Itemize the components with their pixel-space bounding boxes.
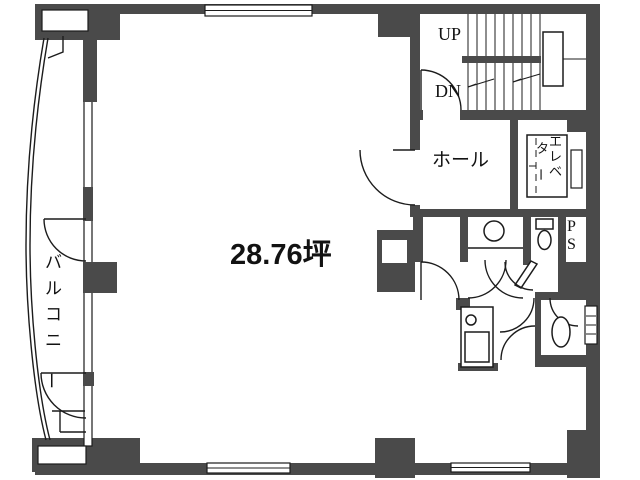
washbasin-sink bbox=[484, 221, 504, 241]
floor-plan: UP DN ホール エレベ ター PS bbox=[0, 0, 640, 480]
area-label: 28.76坪 bbox=[230, 238, 332, 271]
washroom-door-arc2 bbox=[485, 260, 523, 298]
kitchen-faucet bbox=[466, 315, 476, 325]
balcony-label: バルコニー bbox=[40, 253, 62, 389]
hall-main-door bbox=[360, 150, 415, 205]
pipe-space-label: PS bbox=[567, 218, 576, 253]
elevator-label-col1: エレベ bbox=[549, 135, 562, 180]
hall-label: ホール bbox=[432, 149, 489, 171]
wc-door bbox=[505, 261, 537, 290]
stair-treads-upper bbox=[468, 14, 540, 56]
kitchen-sink bbox=[465, 332, 489, 362]
washroom-door-arc bbox=[468, 260, 506, 298]
elevator: エレベ ター bbox=[527, 135, 582, 197]
wc-toilet bbox=[536, 219, 553, 250]
toilet-fixture bbox=[552, 317, 570, 347]
hall: ホール bbox=[360, 149, 489, 205]
lobby-door bbox=[421, 262, 459, 300]
elevator-landing-door bbox=[571, 150, 582, 188]
left-window-wall bbox=[83, 33, 117, 446]
stair-treads-lower bbox=[468, 63, 540, 110]
stairs-up-label: UP bbox=[438, 24, 461, 44]
kitchenette bbox=[461, 307, 493, 367]
doors bbox=[421, 260, 578, 360]
stairs-down-label: DN bbox=[435, 81, 461, 101]
stair-handrail bbox=[543, 32, 563, 86]
